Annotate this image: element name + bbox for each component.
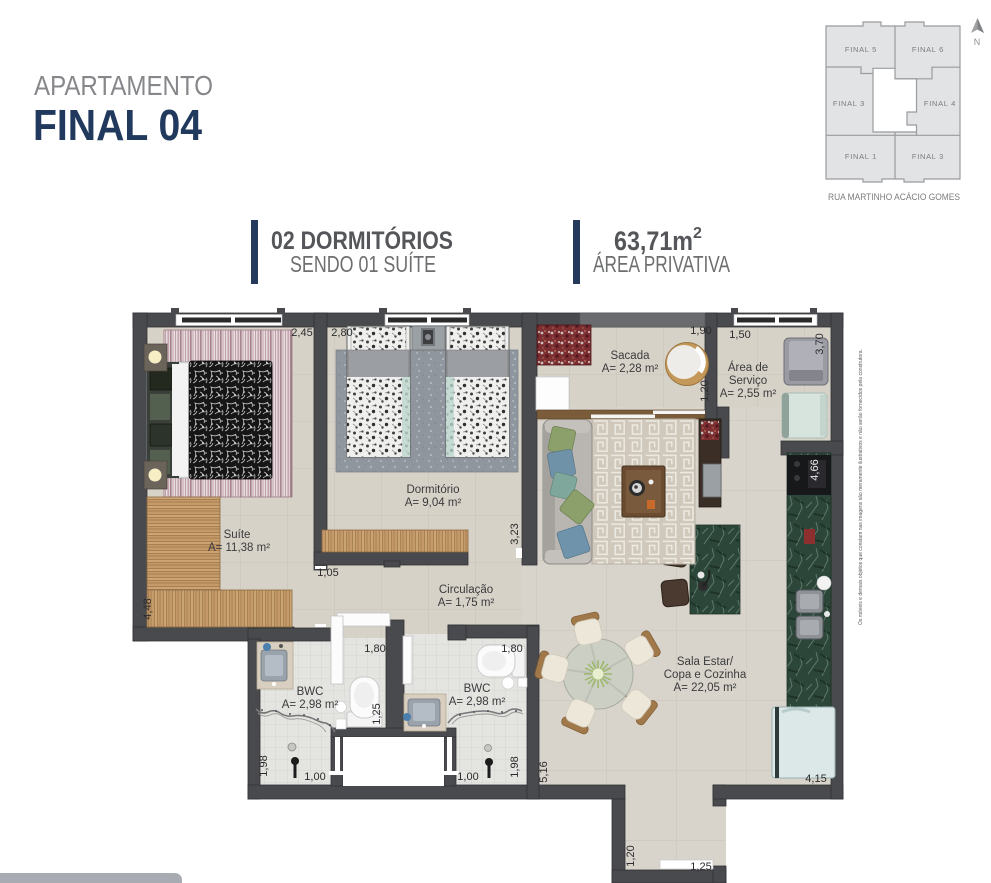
svg-text:1,98: 1,98 [509, 756, 521, 777]
svg-text:1,20: 1,20 [625, 845, 637, 866]
svg-text:A= 2,98 m²: A= 2,98 m² [449, 696, 506, 708]
svg-text:APARTAMENTO: APARTAMENTO [34, 70, 213, 101]
svg-text:1,00: 1,00 [304, 771, 325, 783]
svg-text:Suíte: Suíte [224, 529, 251, 541]
svg-text:Os móveis e demais objetos que: Os móveis e demais objetos que constam n… [858, 349, 864, 625]
svg-text:SENDO 01 SUÍTE: SENDO 01 SUÍTE [290, 251, 436, 277]
svg-text:4,15: 4,15 [805, 773, 826, 785]
svg-text:BWC: BWC [464, 683, 491, 695]
svg-text:Circulação: Circulação [439, 584, 493, 596]
svg-text:FINAL 3: FINAL 3 [833, 99, 865, 108]
svg-text:A= 1,75 m²: A= 1,75 m² [438, 597, 495, 609]
svg-text:A= 9,04 m²: A= 9,04 m² [405, 497, 462, 509]
svg-text:Sala Estar/: Sala Estar/ [677, 656, 734, 668]
svg-text:Serviço: Serviço [729, 375, 767, 387]
svg-text:5,16: 5,16 [538, 761, 550, 782]
svg-text:N: N [974, 37, 981, 47]
svg-text:1,05: 1,05 [317, 567, 338, 579]
svg-text:1,98: 1,98 [258, 755, 270, 776]
svg-text:A= 2,28 m²: A= 2,28 m² [602, 363, 659, 375]
svg-text:ÁREA PRIVATIVA: ÁREA PRIVATIVA [593, 251, 730, 277]
svg-text:RUA MARTINHO ACÁCIO GOMES: RUA MARTINHO ACÁCIO GOMES [828, 192, 960, 202]
svg-text:1,25: 1,25 [690, 861, 711, 873]
svg-text:Sacada: Sacada [610, 350, 650, 362]
svg-text:A= 11,38 m²: A= 11,38 m² [208, 542, 270, 554]
svg-text:2,45: 2,45 [291, 327, 312, 339]
svg-text:2: 2 [693, 225, 702, 242]
svg-text:Área de: Área de [728, 361, 768, 374]
svg-text:BWC: BWC [297, 686, 324, 698]
svg-text:FINAL 4: FINAL 4 [924, 99, 956, 108]
svg-text:4,66: 4,66 [809, 459, 821, 480]
svg-text:2,80: 2,80 [331, 327, 352, 339]
svg-text:FINAL 6: FINAL 6 [912, 45, 944, 54]
svg-text:1,20: 1,20 [699, 380, 711, 401]
svg-text:FINAL 1: FINAL 1 [845, 152, 877, 161]
svg-text:1,80: 1,80 [501, 643, 522, 655]
svg-text:1,25: 1,25 [371, 703, 383, 724]
svg-text:A= 2,55 m²: A= 2,55 m² [720, 388, 777, 400]
svg-text:A= 2,98 m²: A= 2,98 m² [282, 699, 339, 711]
svg-text:3,70: 3,70 [814, 333, 826, 354]
svg-text:4,48: 4,48 [142, 598, 154, 619]
svg-text:A= 22,05 m²: A= 22,05 m² [674, 682, 737, 694]
svg-text:Copa e Cozinha: Copa e Cozinha [664, 669, 747, 681]
svg-text:1,80: 1,80 [364, 643, 385, 655]
svg-text:1,00: 1,00 [457, 771, 478, 783]
svg-text:1,50: 1,50 [729, 329, 750, 341]
svg-text:FINAL 3: FINAL 3 [912, 152, 944, 161]
svg-text:3,23: 3,23 [509, 523, 521, 544]
svg-text:1,90: 1,90 [690, 325, 711, 337]
svg-text:FINAL 04: FINAL 04 [33, 101, 202, 150]
svg-text:Dormitório: Dormitório [406, 484, 459, 496]
svg-text:FINAL 5: FINAL 5 [845, 45, 877, 54]
